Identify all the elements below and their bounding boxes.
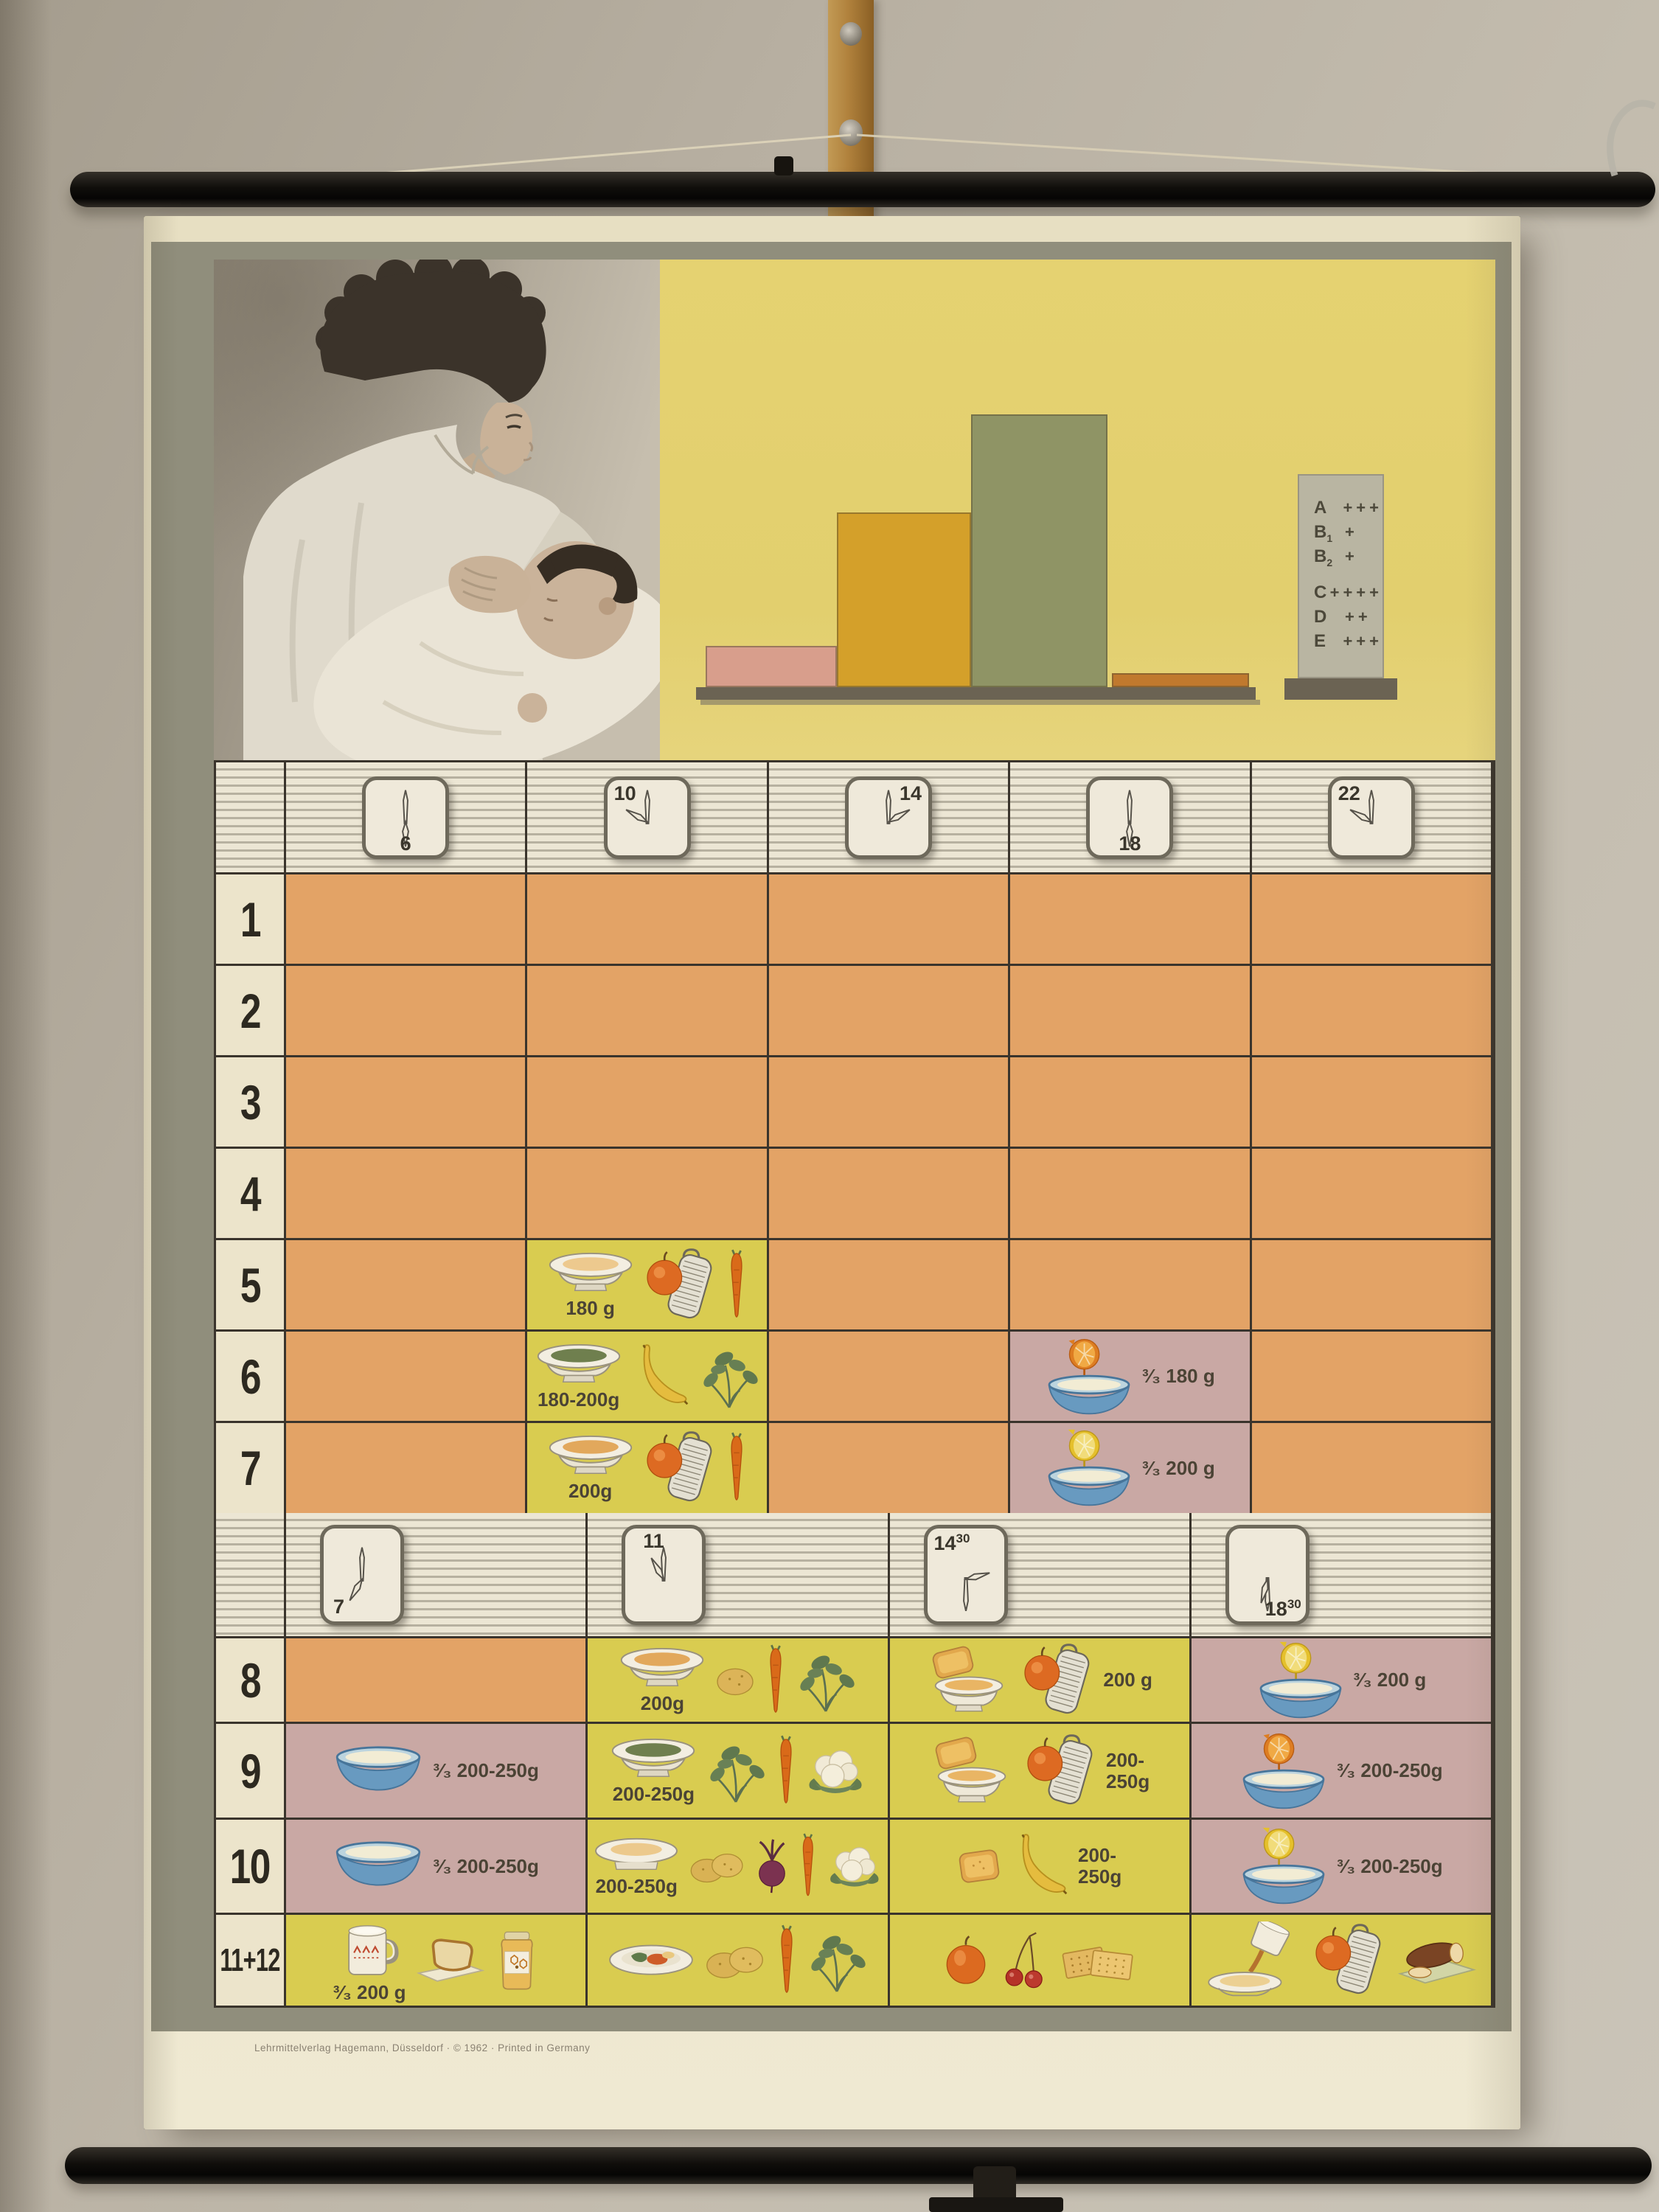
vitamin-label: D xyxy=(1314,607,1345,627)
cell-month-2-col-5 xyxy=(1252,966,1493,1057)
clock-time-label: 11 xyxy=(643,1531,664,1551)
clock-10: 10 xyxy=(604,776,691,859)
cell-content xyxy=(890,1915,1189,2006)
icon-with-amount: 200g xyxy=(619,1646,706,1714)
carrot-icon xyxy=(798,1829,818,1903)
top-hanging-rod xyxy=(70,172,1655,207)
amount-label: 200g xyxy=(568,1481,612,1502)
cell-month-3-col-1 xyxy=(286,1057,527,1149)
clock-7: 7 xyxy=(320,1525,404,1625)
clock-cell-18: 18 xyxy=(1010,762,1251,874)
amount-label: 180 g xyxy=(566,1298,615,1319)
row-label-text: 6 xyxy=(240,1349,260,1405)
clock-cell-14: 14 xyxy=(769,762,1010,874)
amount-label: 200-250g xyxy=(596,1876,678,1897)
cell-content: 200 g xyxy=(890,1638,1189,1722)
wall-chart-poster: A+++B1+B2+C++++D++E+++ 61014182212345180… xyxy=(144,216,1520,2129)
cell-content: 200-250g xyxy=(588,1724,887,1818)
banana-icon xyxy=(1010,1833,1069,1899)
vitamin-row-E: E+++ xyxy=(1314,631,1382,655)
clock-cell-22: 22 xyxy=(1252,762,1493,874)
cell-month-7-col-1 xyxy=(286,1423,527,1515)
clock-cell-10: 10 xyxy=(527,762,768,874)
cell-month-4-col-1 xyxy=(286,1149,527,1240)
bottom-hanging-rod xyxy=(65,2147,1652,2184)
potatoes-icon xyxy=(703,1941,767,1980)
rusk-icon xyxy=(957,1847,1001,1885)
chart-bar-bar-1 xyxy=(706,646,837,687)
cell-content xyxy=(1192,1915,1491,2006)
cell-month-4-col-2 xyxy=(527,1149,768,1240)
cell-content: ³⁄₃ 200-250g xyxy=(1192,1724,1491,1818)
cell-month-1-col-2 xyxy=(527,874,768,966)
row-label-1: 1 xyxy=(216,874,286,966)
row-label-text: 7 xyxy=(240,1440,260,1496)
cell-content: ³⁄₃ 200-250g xyxy=(286,1820,585,1913)
cell-month-7-col-4: ³⁄₃ 200 g xyxy=(1010,1423,1251,1515)
cell-content: ³⁄₃ 180 g xyxy=(1010,1332,1249,1421)
cell-month-3-col-3 xyxy=(769,1057,1010,1149)
rod-clip xyxy=(774,156,793,175)
cell-month-4-col-3 xyxy=(769,1149,1010,1240)
banana-icon xyxy=(631,1343,690,1410)
milk-bowl-icon xyxy=(333,1745,424,1797)
lemon-over-bowl-icon xyxy=(1045,1428,1133,1508)
cauliflower-icon xyxy=(806,1743,865,1799)
cell-content: ³⁄₃ 200 g xyxy=(286,1915,585,2006)
amount-label: 200-250g xyxy=(613,1784,695,1805)
amount-label: ³⁄₃ 200 g xyxy=(1354,1669,1427,1691)
cauliflower-icon xyxy=(827,1838,882,1894)
cell-month-8-col-3: 200 g xyxy=(890,1638,1192,1724)
vitamin-plus-marks: + xyxy=(1345,547,1358,566)
cell-month-6-col-1 xyxy=(286,1332,527,1423)
plate-cream-icon xyxy=(594,1835,679,1875)
amount-label: ³⁄₃ 200-250g xyxy=(433,1760,539,1781)
vitamin-label: B1 xyxy=(1314,522,1345,544)
vitamin-row-D: D++ xyxy=(1314,607,1382,631)
clock-1830: 1830 xyxy=(1225,1525,1310,1625)
cell-month-9-col-1: ³⁄₃ 200-250g xyxy=(286,1724,588,1820)
clock-time-superscript: 30 xyxy=(1287,1597,1301,1611)
dinner-plate-icon xyxy=(608,1941,695,1980)
chart-bar-bar-4 xyxy=(1112,673,1249,687)
clock-time-label: 1430 xyxy=(934,1532,970,1554)
vitamin-label: A xyxy=(1314,498,1343,518)
cell-month-1-col-1 xyxy=(286,874,527,966)
cell-month-5-col-4 xyxy=(1010,1240,1251,1332)
orange-over-bowl-icon xyxy=(1239,1731,1328,1811)
amount-label: ³⁄₃ 180 g xyxy=(1142,1366,1215,1387)
cell-month-11+12-col-1: ³⁄₃ 200 g xyxy=(286,1915,588,2008)
clock-time-label: 6 xyxy=(400,834,411,854)
vitamin-row-B2: B2+ xyxy=(1314,546,1382,571)
vitamin-row-C: C++++ xyxy=(1314,582,1382,607)
cell-month-10-col-4: ³⁄₃ 200-250g xyxy=(1192,1820,1493,1915)
cell-month-11+12-col-2 xyxy=(588,1915,889,2008)
icon-with-amount: 200g xyxy=(547,1434,634,1502)
milk-bowl-icon xyxy=(333,1840,424,1892)
spinach-icon xyxy=(796,1646,856,1714)
nutrition-bar-chart: A+++B1+B2+C++++D++E+++ xyxy=(660,260,1495,760)
chart-bar-bar-3 xyxy=(971,414,1107,687)
pour-plate-icon xyxy=(1204,1921,1303,2000)
soup-plate-green-icon xyxy=(535,1343,622,1388)
amount-label: ³⁄₃ 200-250g xyxy=(433,1856,539,1877)
orange-over-bowl-icon xyxy=(1045,1337,1133,1416)
clock-cell-7: 7 xyxy=(286,1513,588,1638)
cell-month-8-col-1 xyxy=(286,1638,588,1724)
row-label-text: 11+12 xyxy=(220,1942,279,1979)
carrot-icon xyxy=(776,1924,798,1997)
row-label-10: 10 xyxy=(216,1820,286,1915)
cell-content: 200- 250g xyxy=(890,1724,1189,1818)
cell-month-4-col-4 xyxy=(1010,1149,1251,1240)
amount-label: 200g xyxy=(641,1693,684,1714)
cell-month-9-col-4: ³⁄₃ 200-250g xyxy=(1192,1724,1493,1820)
amount-label: 200 g xyxy=(1103,1669,1152,1691)
vitamin-label: B2 xyxy=(1314,546,1345,568)
cell-month-2-col-4 xyxy=(1010,966,1251,1057)
clock-cell-1830: 1830 xyxy=(1192,1513,1493,1638)
cell-content: 200-250g xyxy=(588,1820,887,1913)
rusk-bowl-icon xyxy=(926,1644,1012,1717)
jam-jar-icon xyxy=(495,1929,538,1992)
cell-month-2-col-1 xyxy=(286,966,527,1057)
photograph-scene: A+++B1+B2+C++++D++E+++ 61014182212345180… xyxy=(0,0,1659,2212)
vitamin-plus-marks: + xyxy=(1345,523,1358,542)
amount-label: ³⁄₃ 200 g xyxy=(333,1982,406,2003)
row-label-8: 8 xyxy=(216,1638,286,1724)
row-label-text: 5 xyxy=(240,1257,260,1313)
soup-plate-green-icon xyxy=(610,1737,697,1783)
carrot-icon xyxy=(765,1644,787,1717)
vitamin-label: E xyxy=(1314,631,1343,652)
poster-header: A+++B1+B2+C++++D++E+++ xyxy=(214,260,1495,760)
apple-icon xyxy=(943,1934,989,1987)
wall-hook-icon xyxy=(1599,93,1659,183)
apple-grater-icon xyxy=(643,1431,717,1505)
clock-6: 6 xyxy=(362,776,449,859)
row-label-2: 2 xyxy=(216,966,286,1057)
icon-with-amount: ³⁄₃ 200 g xyxy=(333,1918,406,2003)
clock-14: 14 xyxy=(845,776,932,859)
cell-month-7-col-2: 200g xyxy=(527,1423,768,1515)
cell-month-5-col-3 xyxy=(769,1240,1010,1332)
crackers-icon xyxy=(1057,1937,1136,1984)
stand-base xyxy=(929,2197,1063,2212)
row-label-6: 6 xyxy=(216,1332,286,1423)
icon-with-amount: 180-200g xyxy=(535,1343,622,1411)
cell-month-2-col-3 xyxy=(769,966,1010,1057)
spinach-icon xyxy=(807,1927,867,1994)
vitamin-panel-base xyxy=(1284,678,1397,700)
row-label-text: 3 xyxy=(240,1074,260,1130)
clock-time-label: 22 xyxy=(1338,784,1360,804)
clock-time-label: 7 xyxy=(333,1597,344,1617)
vitamin-plus-marks: ++++ xyxy=(1330,583,1382,602)
publisher-imprint: Lehrmittelverlag Hagemann, Düsseldorf · … xyxy=(254,2042,590,2053)
icon-with-amount: 180 g xyxy=(547,1251,634,1319)
clock-row-spacer xyxy=(216,1513,286,1638)
soup-plate-amber-icon xyxy=(547,1434,634,1480)
cell-month-6-col-4: ³⁄₃ 180 g xyxy=(1010,1332,1251,1423)
soup-plate-amber-icon xyxy=(619,1646,706,1692)
cell-month-4-col-5 xyxy=(1252,1149,1493,1240)
carrot-icon xyxy=(775,1734,797,1808)
row-label-text: 1 xyxy=(240,891,260,947)
vitamin-row-B1: B1+ xyxy=(1314,522,1382,546)
apple-grater-icon xyxy=(643,1248,717,1322)
clock-cell-11: 11 xyxy=(588,1513,889,1638)
cell-month-10-col-1: ³⁄₃ 200-250g xyxy=(286,1820,588,1915)
soup-plate-cream-icon xyxy=(547,1251,634,1297)
carrot-icon xyxy=(726,1431,748,1505)
amount-label: 200- 250g xyxy=(1078,1845,1121,1887)
lemon-over-bowl-icon xyxy=(1256,1641,1345,1720)
feeding-schedule-months-1-7: 61014182212345180 g6180-200g ³⁄₃ 180 g72… xyxy=(214,760,1495,1513)
amount-label: 180-200g xyxy=(538,1389,619,1411)
row-label-5: 5 xyxy=(216,1240,286,1332)
row-label-text: 2 xyxy=(240,983,260,1039)
apple-grater-icon xyxy=(1023,1734,1097,1808)
icon-with-amount: 200-250g xyxy=(594,1835,679,1897)
apple-grater-icon xyxy=(1020,1644,1094,1717)
bread-board-icon xyxy=(1394,1930,1478,1991)
poster-content: A+++B1+B2+C++++D++E+++ 61014182212345180… xyxy=(214,260,1495,2008)
vitamin-label: C xyxy=(1314,582,1330,603)
cell-month-9-col-3: 200- 250g xyxy=(890,1724,1192,1820)
clock-1430: 1430 xyxy=(924,1525,1008,1625)
row-label-text: 9 xyxy=(240,1743,260,1799)
clock-time-label: 18 xyxy=(1119,834,1141,854)
cell-month-1-col-5 xyxy=(1252,874,1493,966)
cell-content: 180 g xyxy=(527,1240,766,1329)
cell-month-5-col-2: 180 g xyxy=(527,1240,768,1332)
feeding-schedule-months-8-12: 711143018308200g200 g ³⁄₃ 200 g9³⁄₃ 200-… xyxy=(214,1513,1495,2008)
cell-month-5-col-1 xyxy=(286,1240,527,1332)
vitamin-plus-marks: ++ xyxy=(1345,608,1371,627)
cherries-icon xyxy=(998,1930,1048,1991)
row-label-9: 9 xyxy=(216,1724,286,1820)
mother-nursing-baby-photo xyxy=(214,260,660,760)
row-label-text: 4 xyxy=(240,1166,260,1222)
mug-icon xyxy=(340,1918,399,1981)
spinach-icon xyxy=(699,1343,759,1411)
vitamin-panel: A+++B1+B2+C++++D++E+++ xyxy=(1298,474,1384,678)
icon-with-amount: 200-250g xyxy=(610,1737,697,1805)
clock-time-label: 10 xyxy=(614,784,636,804)
amount-label: ³⁄₃ 200 g xyxy=(1142,1458,1215,1479)
clock-cell-6: 6 xyxy=(286,762,527,874)
rusk-bowl-icon xyxy=(929,1735,1015,1807)
cell-month-7-col-5 xyxy=(1252,1423,1493,1515)
row-label-4: 4 xyxy=(216,1149,286,1240)
cell-month-8-col-4: ³⁄₃ 200 g xyxy=(1192,1638,1493,1724)
cell-month-10-col-3: 200- 250g xyxy=(890,1820,1192,1915)
clock-18: 18 xyxy=(1086,776,1173,859)
bread-slice-icon xyxy=(414,1935,487,1986)
cell-month-1-col-3 xyxy=(769,874,1010,966)
clock-cell-1430: 1430 xyxy=(890,1513,1192,1638)
chart-base-shadow xyxy=(700,700,1260,705)
vitamin-label-subscript: 1 xyxy=(1326,532,1332,544)
cell-month-7-col-3 xyxy=(769,1423,1010,1515)
cell-month-3-col-4 xyxy=(1010,1057,1251,1149)
row-label-text: 8 xyxy=(240,1652,260,1708)
row-label-11+12: 11+12 xyxy=(216,1915,286,2008)
row-label-7: 7 xyxy=(216,1423,286,1515)
chart-bar-bar-2 xyxy=(837,512,971,687)
cell-month-6-col-3 xyxy=(769,1332,1010,1423)
cell-month-3-col-5 xyxy=(1252,1057,1493,1149)
cell-month-11+12-col-4 xyxy=(1192,1915,1493,2008)
carrot-icon xyxy=(726,1248,748,1322)
vitamin-row-A: A+++ xyxy=(1314,498,1382,522)
cell-content: 200g xyxy=(527,1423,766,1513)
vitamin-plus-marks: +++ xyxy=(1343,498,1382,518)
spinach-icon xyxy=(706,1737,766,1805)
vitamin-plus-marks: +++ xyxy=(1343,632,1382,651)
cell-month-8-col-2: 200g xyxy=(588,1638,889,1724)
cell-month-9-col-2: 200-250g xyxy=(588,1724,889,1820)
chart-base-plinth xyxy=(696,687,1256,700)
clock-time-label: 14 xyxy=(900,784,922,804)
cell-month-6-col-2: 180-200g xyxy=(527,1332,768,1423)
cell-content xyxy=(588,1915,887,2006)
clock-22: 22 xyxy=(1328,776,1415,859)
cell-month-10-col-2: 200-250g xyxy=(588,1820,889,1915)
cell-content: ³⁄₃ 200-250g xyxy=(1192,1820,1491,1913)
cell-month-11+12-col-3 xyxy=(890,1915,1192,2008)
lemon-over-bowl-icon xyxy=(1239,1826,1328,1906)
potatoes-icon xyxy=(688,1846,746,1886)
cell-month-3-col-2 xyxy=(527,1057,768,1149)
cell-content: 180-200g xyxy=(527,1332,766,1421)
cell-month-2-col-2 xyxy=(527,966,768,1057)
cell-content: ³⁄₃ 200-250g xyxy=(286,1724,585,1818)
amount-label: 200- 250g xyxy=(1106,1750,1150,1792)
potato-icon xyxy=(714,1663,756,1698)
vitamin-label-subscript: 2 xyxy=(1326,557,1332,568)
cell-month-1-col-4 xyxy=(1010,874,1251,966)
cell-month-5-col-5 xyxy=(1252,1240,1493,1332)
cell-month-6-col-5 xyxy=(1252,1332,1493,1423)
row-label-3: 3 xyxy=(216,1057,286,1149)
cell-content: 200g xyxy=(588,1638,887,1722)
clock-time-label: 1830 xyxy=(1265,1598,1301,1619)
clock-11: 11 xyxy=(622,1525,706,1625)
row-label-text: 10 xyxy=(230,1838,270,1894)
clock-row-spacer xyxy=(216,762,286,874)
clock-time-superscript: 30 xyxy=(956,1531,970,1545)
cell-content: ³⁄₃ 200 g xyxy=(1192,1638,1491,1722)
cell-content: ³⁄₃ 200 g xyxy=(1010,1423,1249,1513)
amount-label: ³⁄₃ 200-250g xyxy=(1337,1856,1443,1877)
amount-label: ³⁄₃ 200-250g xyxy=(1337,1760,1443,1781)
apple-grater-icon xyxy=(1312,1924,1385,1997)
beet-icon xyxy=(755,1835,789,1897)
cell-content: 200- 250g xyxy=(890,1820,1189,1913)
